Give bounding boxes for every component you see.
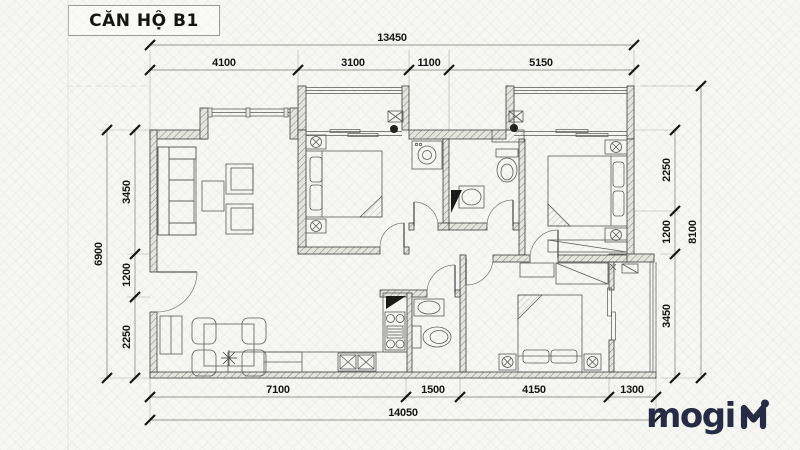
dim-right-seg3: 3450 (661, 304, 673, 328)
bedroom2-sliding-door (514, 130, 627, 137)
dim-left-seg3: 2250 (121, 325, 133, 349)
floorplan-page: CĂN HỘ B1 (0, 0, 800, 450)
bedroom2-door-arc (530, 230, 558, 258)
cutting-board-symbol (386, 296, 406, 309)
bed2-symbol (548, 156, 627, 226)
ac-unit-symbol (605, 140, 627, 154)
bedroom1-sliding-door (306, 130, 402, 137)
guide-lines (68, 0, 712, 450)
entry-cabinet-symbol (160, 316, 182, 354)
floorplan-drawing: 13450 4100 3100 1100 5150 7100 1500 4150… (0, 0, 800, 450)
dim-bottom-seg4: 1300 (620, 384, 644, 396)
dim-left-seg1: 3450 (121, 180, 133, 204)
bath-mat-symbol (451, 190, 462, 213)
shower-symbol (492, 130, 524, 142)
dimension-labels: 13450 4100 3100 1100 5150 7100 1500 4150… (93, 32, 699, 419)
balcony3-sliding-door (608, 288, 616, 340)
ac-unit-symbol (584, 354, 601, 370)
kitchen-sink-symbol (338, 353, 376, 371)
toilet-symbol (412, 326, 451, 348)
balcony1-railing (306, 88, 402, 94)
mogi-logo-text: mogi (646, 399, 735, 433)
sofa-symbol (158, 147, 196, 235)
dim-top-seg2: 3100 (341, 57, 365, 69)
laundry-door-arc (414, 202, 438, 226)
dim-top-overall: 13450 (377, 32, 407, 44)
armchair-symbol (226, 164, 253, 194)
dining-set-symbol (192, 318, 266, 376)
dim-top-seg3: 1100 (417, 57, 440, 69)
dim-bottom-seg2: 1500 (421, 384, 445, 396)
balcony3-railing (650, 262, 656, 372)
dim-left-overall: 6900 (93, 242, 105, 266)
bay-window (208, 108, 290, 117)
bed1-symbol (306, 151, 382, 217)
wardrobe-symbol (520, 263, 608, 284)
dim-bottom-seg3: 4150 (522, 384, 546, 396)
bedroom1-door-arc (380, 223, 404, 247)
dim-bottom-seg1: 7100 (266, 384, 290, 396)
kitchen-counter-symbol (228, 293, 407, 372)
dim-right-seg1: 2250 (661, 158, 673, 182)
mogi-logo-mark (739, 397, 769, 429)
bathroom1-door-arc (487, 200, 513, 226)
toilet-symbol (496, 149, 518, 182)
dim-right-overall: 8100 (687, 220, 699, 244)
stove-symbol (385, 312, 405, 350)
ac-unit-symbol (306, 135, 326, 149)
washing-machine-symbol (412, 141, 442, 169)
coffee-table-symbol (202, 181, 224, 211)
ac-unit-symbol (306, 219, 326, 233)
ac-unit-symbol (499, 354, 516, 370)
entry-door-arc (157, 272, 197, 312)
dim-right-seg2: 1200 (661, 220, 673, 244)
dim-left-seg2: 1200 (121, 263, 133, 287)
dim-bottom-overall: 14050 (388, 407, 418, 419)
furniture (158, 111, 638, 376)
bathroom2-door-arc (427, 265, 455, 293)
dim-top-seg1: 4100 (212, 57, 236, 69)
sink-symbol (414, 299, 444, 316)
balcony2-railing (514, 88, 627, 94)
dim-top-seg4: 5150 (529, 57, 553, 69)
balcony1-unit-symbol (388, 111, 403, 133)
mogi-logo: mogi (646, 399, 769, 433)
bedroom3-door-arc (466, 258, 493, 285)
bed3-symbol (518, 295, 582, 372)
sink-symbol (459, 186, 484, 208)
armchair-symbol (226, 204, 253, 234)
